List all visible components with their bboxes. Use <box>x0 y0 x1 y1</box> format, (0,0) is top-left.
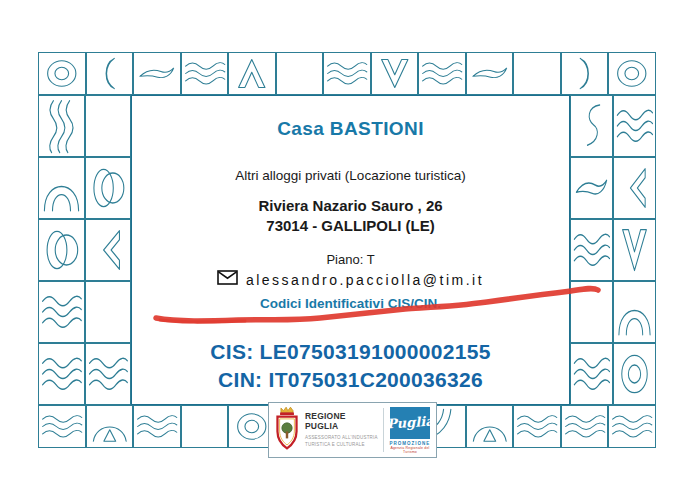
region-dept-line2: TURISTICA E CULTURALE <box>305 442 381 449</box>
border-tile-waves <box>608 405 656 448</box>
border-tile-waves <box>513 405 561 448</box>
puglia-promozione-square: Puglia <box>390 407 430 439</box>
border-tile-smile <box>133 52 181 95</box>
border-tile-blank <box>513 52 561 95</box>
promozione-subtitle: Agenzia Regionale del Turismo <box>388 446 432 454</box>
border-tile-blank <box>181 405 229 448</box>
codes-heading: Codici Identificativi CIS/CIN. <box>132 296 569 311</box>
border-tile-vwaves <box>38 95 85 157</box>
border-tile-donut <box>613 343 656 405</box>
border-tile-chevron-left <box>613 157 656 219</box>
border-tile-waves <box>570 219 613 281</box>
border-tile-waves <box>133 405 181 448</box>
email-row: alessandro.pacciolla@tim.it <box>132 270 569 289</box>
email-address: alessandro.pacciolla@tim.it <box>246 272 484 288</box>
border-tile-chevron-left <box>85 219 131 281</box>
border-tile-waves <box>38 405 86 448</box>
border-tile-chevron-up <box>228 52 276 95</box>
border-tile-donut <box>38 52 86 95</box>
page-title: Casa BASTIONI <box>132 118 569 140</box>
border-tile-waves <box>85 343 131 405</box>
border-tile-waves <box>181 52 229 95</box>
border-tile-mountain <box>466 405 514 448</box>
border-tile-blank <box>85 95 131 157</box>
border-tile-arc-left <box>86 52 134 95</box>
property-type: Altri alloggi privati (Locazione turisti… <box>132 168 569 183</box>
region-name: REGIONE PUGLIA <box>305 411 381 431</box>
logo-divider <box>383 408 384 452</box>
border-tile-smile <box>570 157 613 219</box>
border-tile-waves <box>323 52 371 95</box>
border-tile-blank <box>570 281 613 343</box>
border-tile-crescent-right <box>561 52 609 95</box>
border-tile-blank <box>276 52 324 95</box>
puglia-script-text: Puglia <box>386 413 434 431</box>
content-frame: Casa BASTIONI Altri alloggi privati (Loc… <box>131 95 570 405</box>
border-tile-smile <box>466 52 514 95</box>
regione-puglia-crest-icon <box>274 404 300 456</box>
envelope-icon <box>217 270 238 289</box>
promozione-label: PROMOZIONE <box>388 441 432 446</box>
border-tile-vee <box>613 219 656 281</box>
address-city: 73014 - GALLIPOLI (LE) <box>132 217 569 234</box>
address-street: Riviera Nazario Sauro , 26 <box>132 197 569 214</box>
cin-code: CIN: IT075031C200036326 <box>132 368 569 392</box>
border-tile-mountain <box>86 405 134 448</box>
puglia-promozione-logo: Puglia PROMOZIONE Agenzia Regionale del … <box>388 407 432 454</box>
region-department: ASSESSORATO ALL'INDUSTRIA TURISTICA E CU… <box>305 435 381 448</box>
border-tile-waves <box>38 343 85 405</box>
border-tile-blank <box>85 281 131 343</box>
border-tile-circle <box>38 219 85 281</box>
border-tile-waves <box>418 52 466 95</box>
border-tile-circle <box>85 157 131 219</box>
border-tile-waves <box>613 95 656 157</box>
border-tile-waves <box>38 281 85 343</box>
border-tile-dome <box>38 157 85 219</box>
floor-label: Piano: T <box>132 252 569 267</box>
border-tile-vee <box>371 52 419 95</box>
border-tile-dome <box>613 281 656 343</box>
certificate-page: Casa BASTIONI Altri alloggi privati (Loc… <box>0 0 700 500</box>
footer-logos: REGIONE PUGLIA ASSESSORATO ALL'INDUSTRIA… <box>268 402 437 458</box>
border-tile-donut <box>608 52 656 95</box>
cis-code: CIS: LE07503191000002155 <box>132 340 569 364</box>
border-tile-waves <box>561 405 609 448</box>
border-tile-curl <box>570 95 613 157</box>
border-tile-waves <box>570 343 613 405</box>
region-text-block: REGIONE PUGLIA ASSESSORATO ALL'INDUSTRIA… <box>305 411 381 448</box>
